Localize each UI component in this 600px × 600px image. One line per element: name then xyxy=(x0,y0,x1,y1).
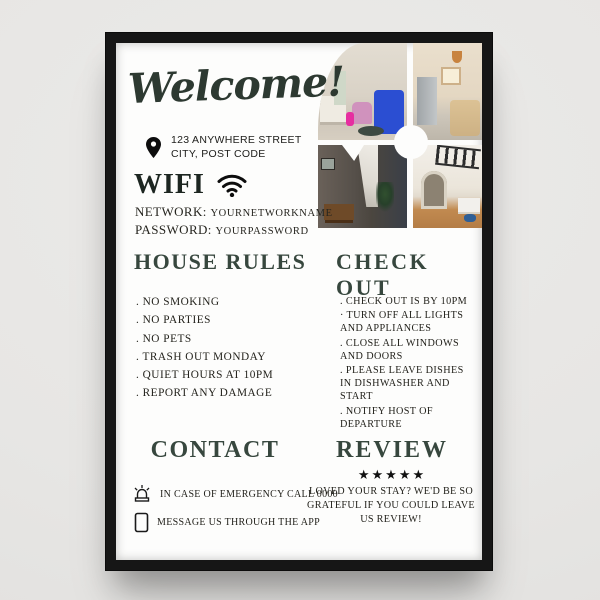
picture-frame: Welcome! 123 ANYWHERE STREET CITY, POST … xyxy=(106,33,492,570)
wifi-password-row: PASSWORD: YOURPASSWORD xyxy=(135,222,309,238)
address-line2: CITY, POST CODE xyxy=(171,147,302,161)
network-label: NETWORK: xyxy=(135,204,207,219)
house-rules-title: HOUSE RULES xyxy=(134,249,306,275)
app-contact-row: MESSAGE US THROUGH THE APP xyxy=(134,512,320,533)
desk-shape xyxy=(458,198,480,212)
pink-chair-shape xyxy=(352,102,372,124)
password-label: PASSWORD: xyxy=(135,222,212,237)
check-out-item: · TURN OFF ALL LIGHTS AND APPLIANCES xyxy=(340,309,472,335)
welcome-poster: Welcome! 123 ANYWHERE STREET CITY, POST … xyxy=(116,43,482,560)
review-title: REVIEW xyxy=(306,437,478,464)
flower-shape xyxy=(346,112,354,126)
ceiling-ladder-shape xyxy=(435,145,481,169)
emergency-siren-icon xyxy=(132,484,152,504)
review-request-text: LOVED YOUR STAY? WE'D BE SO GRATEFUL IF … xyxy=(300,485,482,526)
window-shape xyxy=(443,69,459,83)
house-rule-item: . NO SMOKING xyxy=(136,293,276,311)
house-rule-item: . NO PARTIES xyxy=(136,311,276,329)
wifi-section: WIFI xyxy=(134,169,247,201)
wifi-icon xyxy=(217,173,247,197)
photo-kitchen xyxy=(413,43,482,140)
location-pin-icon xyxy=(146,137,161,158)
house-rule-item: . TRASH OUT MONDAY xyxy=(136,348,276,366)
plant-shape xyxy=(376,182,394,222)
app-message-text: MESSAGE US THROUGH THE APP xyxy=(157,517,320,528)
address-text: 123 ANYWHERE STREET CITY, POST CODE xyxy=(171,133,302,161)
welcome-heading: Welcome! xyxy=(127,57,359,113)
house-rule-item: . NO PETS xyxy=(136,330,276,348)
check-out-title: CHECK OUT xyxy=(336,249,482,301)
check-out-item: . PLEASE LEAVE DISHES IN DISHWASHER AND … xyxy=(340,364,472,404)
fridge-shape xyxy=(417,77,437,125)
password-value: YOURPASSWORD xyxy=(215,226,308,237)
check-out-item: . CLOSE ALL WINDOWS AND DOORS xyxy=(340,337,472,363)
collage-center-circle xyxy=(394,125,428,159)
check-out-list: . CHECK OUT IS BY 10PM · TURN OFF ALL LI… xyxy=(340,295,472,432)
blue-pouf-shape xyxy=(464,214,476,222)
house-rules-list: . NO SMOKING . NO PARTIES . NO PETS . TR… xyxy=(136,293,276,403)
wall-background: Welcome! 123 ANYWHERE STREET CITY, POST … xyxy=(0,0,600,600)
address-line1: 123 ANYWHERE STREET xyxy=(171,133,302,147)
photo-arch-living-room xyxy=(413,145,482,228)
address-block: 123 ANYWHERE STREET CITY, POST CODE xyxy=(146,133,302,161)
arch-doorway-shape xyxy=(421,171,447,209)
wifi-network-row: NETWORK: YOURNETWORKNAME xyxy=(135,204,333,220)
check-out-item: . CHECK OUT IS BY 10PM xyxy=(340,295,472,308)
five-star-rating: ★★★★★ xyxy=(306,467,478,483)
house-rule-item: . REPORT ANY DAMAGE xyxy=(136,384,276,402)
check-out-item: . NOTIFY HOST OF DEPARTURE xyxy=(340,405,472,431)
phone-icon xyxy=(134,512,149,533)
wifi-title: WIFI xyxy=(134,169,205,201)
wicker-chair-shape xyxy=(450,100,480,136)
hanging-pot-shape xyxy=(452,51,462,63)
house-rule-item: . QUIET HOURS AT 10PM xyxy=(136,366,276,384)
network-value: YOURNETWORKNAME xyxy=(210,208,332,219)
wall-art-shape xyxy=(322,159,334,169)
contact-title: CONTACT xyxy=(122,437,308,464)
coffee-table-shape xyxy=(358,126,384,136)
